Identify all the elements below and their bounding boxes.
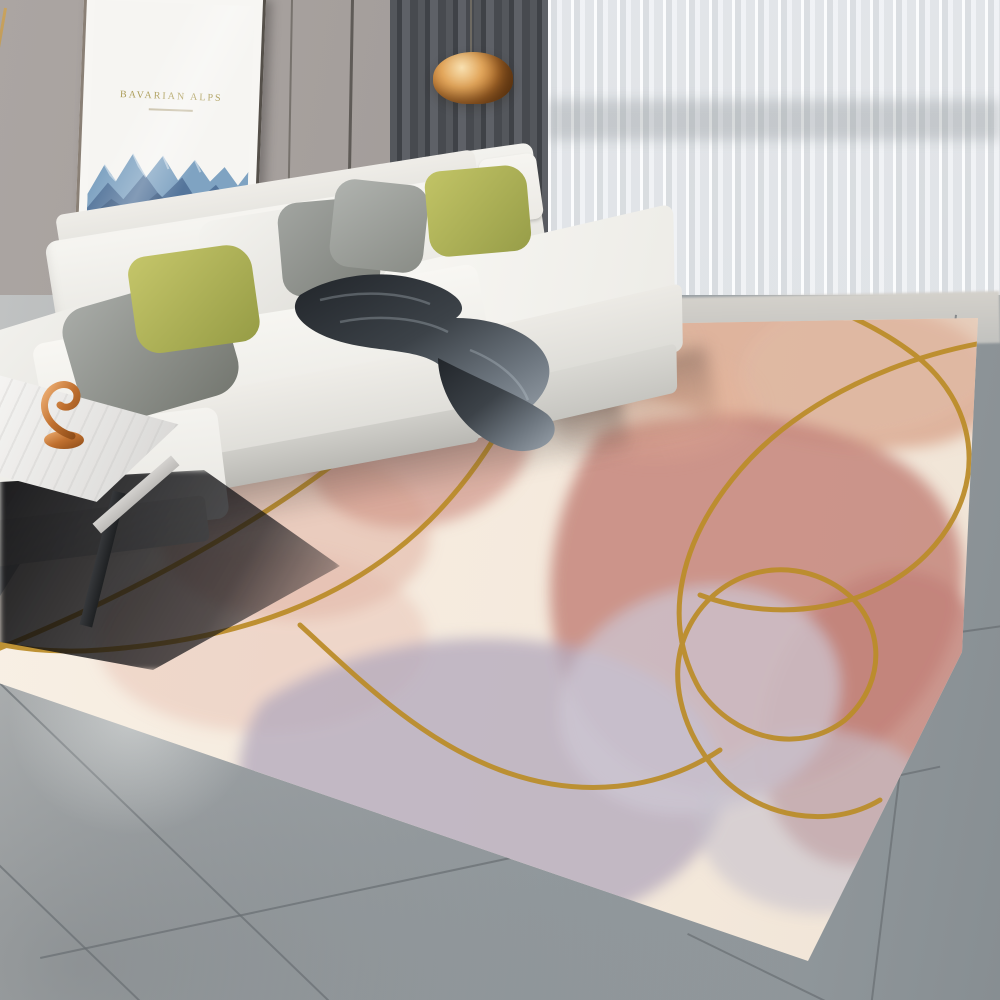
floor-grout-line xyxy=(0,853,189,1000)
lamp-cable xyxy=(470,0,472,58)
pendant-lamp xyxy=(433,52,513,104)
sheer-curtain-shadow-band xyxy=(548,100,1000,140)
poster-art: BAVARIAN ALPS xyxy=(83,0,255,312)
living-room-photo: BAVARIAN ALPS xyxy=(0,0,1000,1000)
floor-grout-line xyxy=(687,933,1000,1000)
sheer-curtain xyxy=(548,0,1000,340)
poster-glass-sheen xyxy=(83,0,255,312)
dark-curtain xyxy=(390,0,558,315)
wall-art-frame: BAVARIAN ALPS xyxy=(72,0,266,323)
